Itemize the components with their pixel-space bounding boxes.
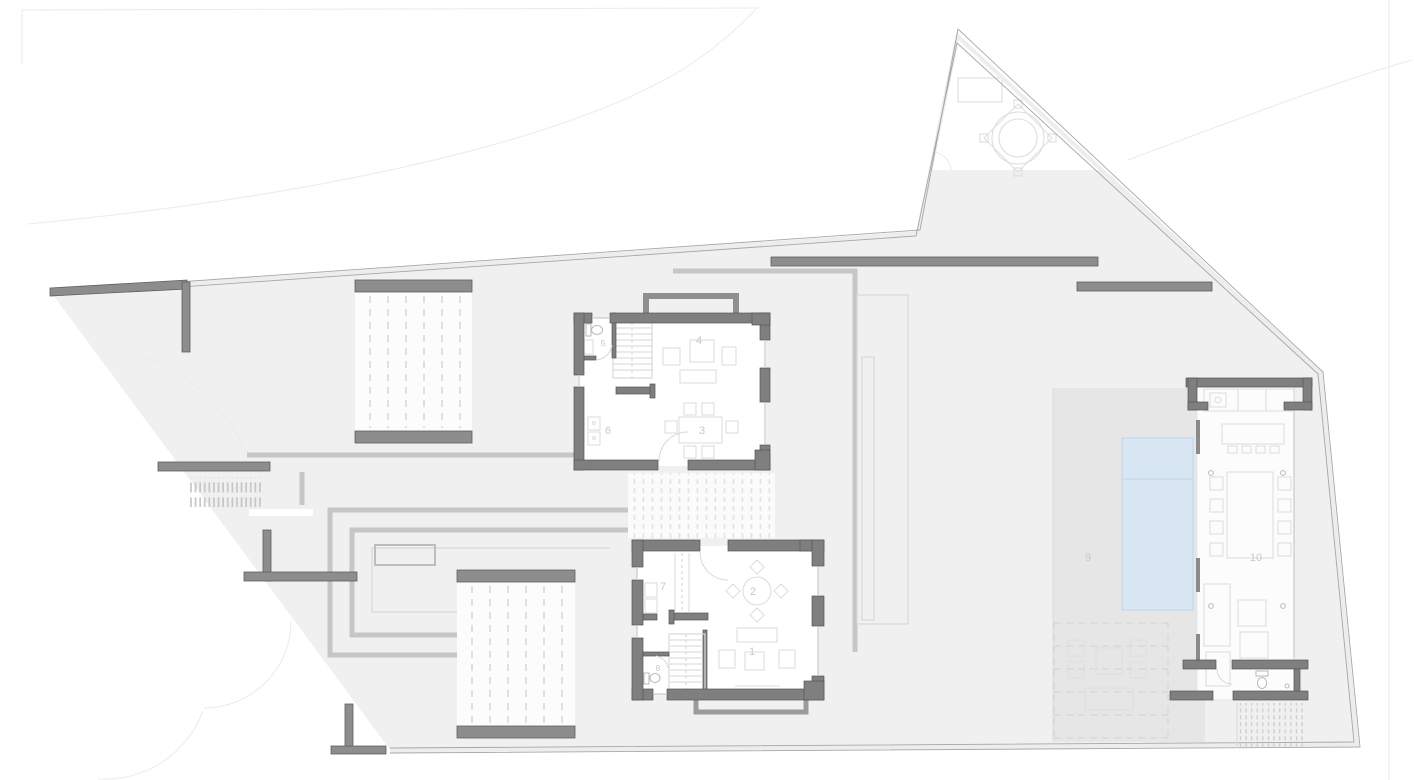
floor-plan-canvas: 1 2 3 4 5 6 7 8 9 10 [0,0,1414,780]
room-label-4: 4 [696,335,702,347]
timber-deck [628,473,775,538]
tree-motif [958,78,1056,176]
room-label-5: 5 [601,338,606,348]
toilet-icon [1256,671,1268,689]
house-lower [632,540,824,712]
pergola-south [457,570,575,738]
room-label-6: 6 [605,425,611,437]
toilet-icon [586,324,603,336]
room-label-1: 1 [749,646,755,658]
room-label-10: 10 [1250,552,1262,564]
pergola-north [355,280,472,443]
room-label-7: 7 [660,581,666,593]
room-label-3: 3 [699,425,705,437]
swimming-pool [1122,438,1193,610]
room-label-2: 2 [750,586,756,598]
room-label-8: 8 [656,663,661,673]
pool-terrace [1053,388,1205,742]
house-upper [574,296,770,470]
shower-icon [1285,684,1289,688]
room-label-9: 9 [1085,552,1091,564]
pool-pavilion [1186,378,1312,700]
exterior-steps [1237,703,1305,748]
entry-steps [190,477,262,507]
floor-plan-page: 1 2 3 4 5 6 7 8 9 10 [0,0,1414,780]
